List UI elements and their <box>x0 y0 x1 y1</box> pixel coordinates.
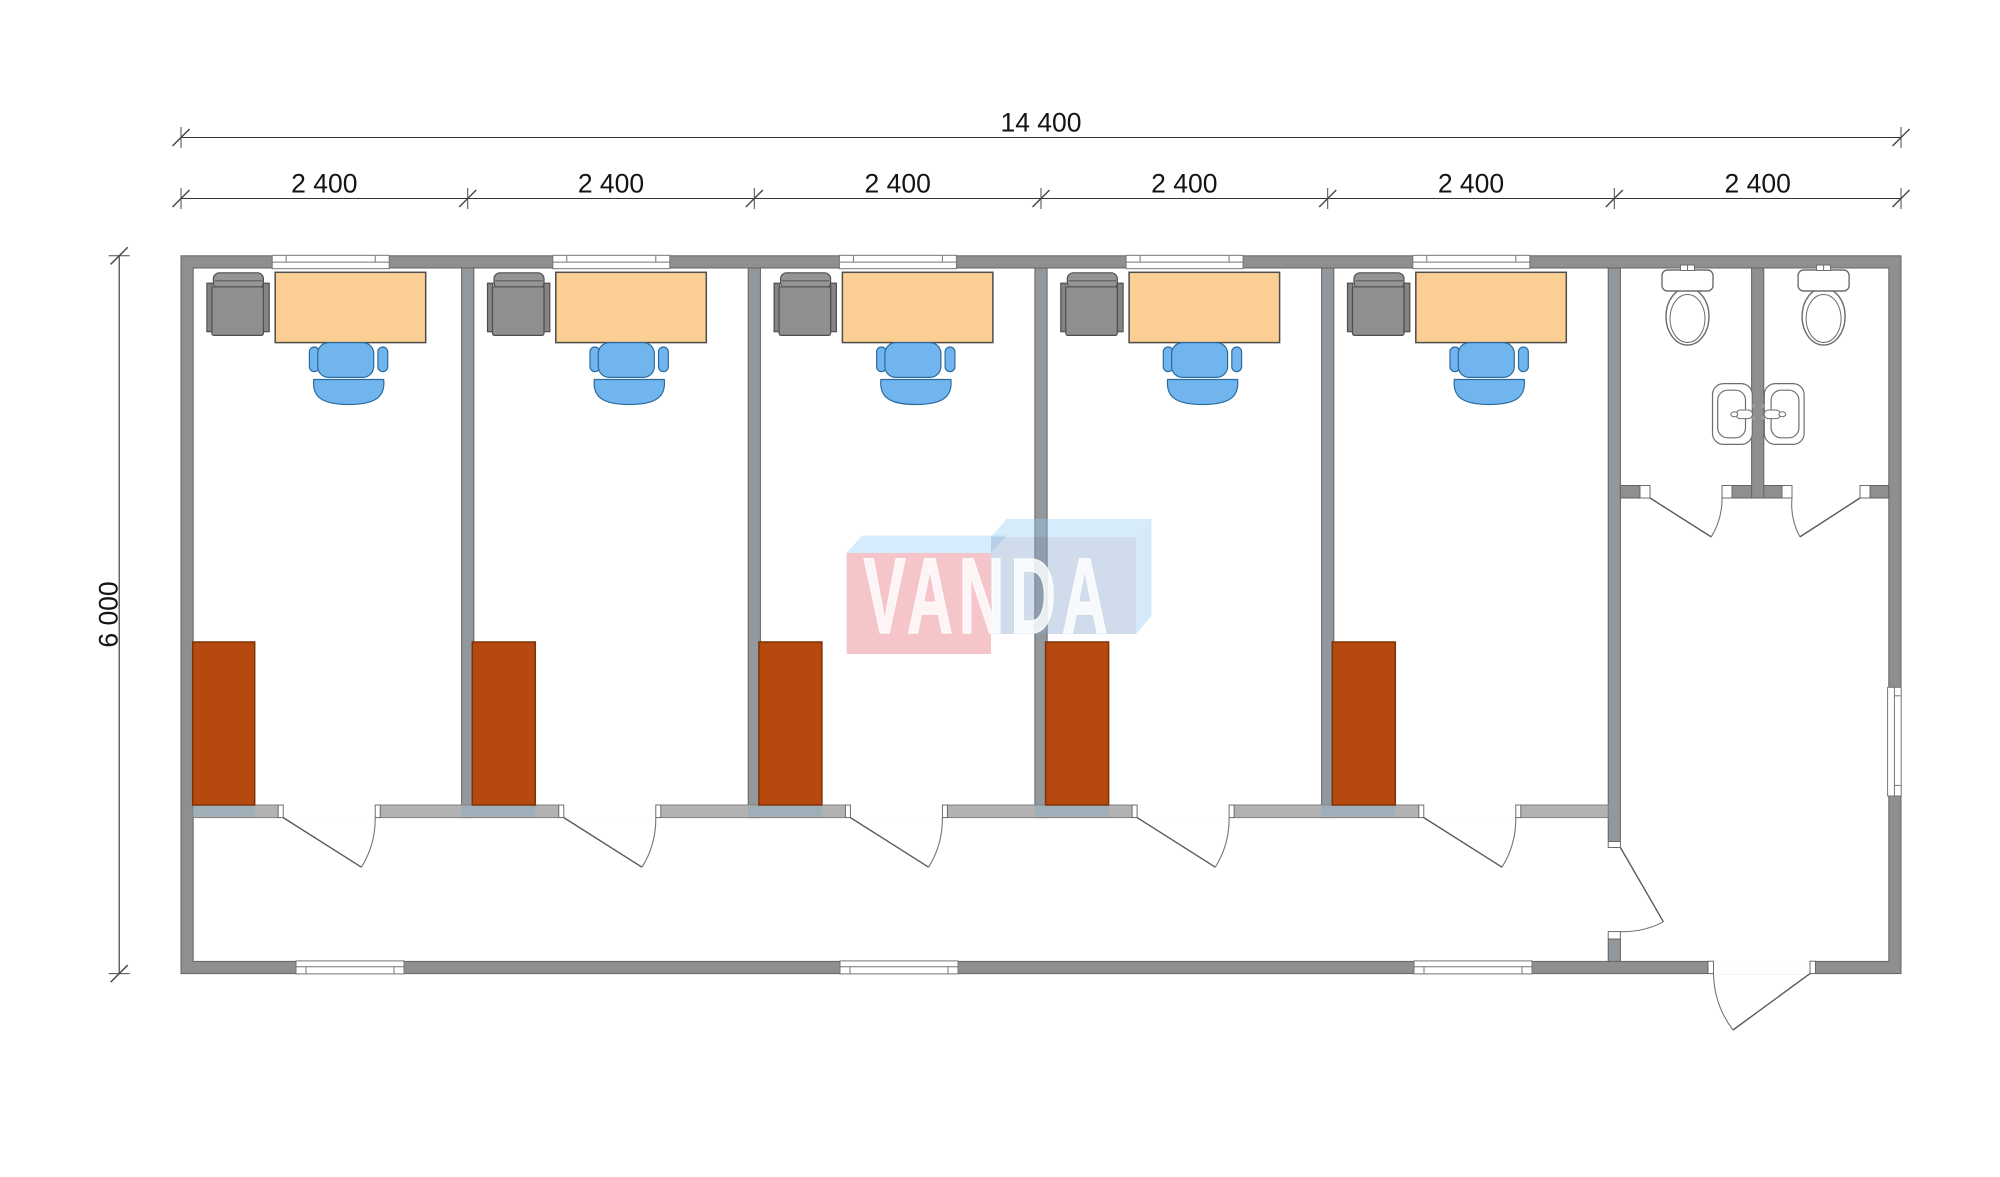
svg-text:2 400: 2 400 <box>865 169 931 199</box>
svg-text:2 400: 2 400 <box>578 169 644 199</box>
svg-text:2 400: 2 400 <box>291 169 357 199</box>
svg-text:2 400: 2 400 <box>1725 169 1791 199</box>
svg-text:14 400: 14 400 <box>1000 108 1081 138</box>
svg-text:2 400: 2 400 <box>1151 169 1217 199</box>
svg-text:6 000: 6 000 <box>94 581 124 647</box>
svg-text:2 400: 2 400 <box>1438 169 1504 199</box>
svg-text:VANDA: VANDA <box>864 535 1114 656</box>
